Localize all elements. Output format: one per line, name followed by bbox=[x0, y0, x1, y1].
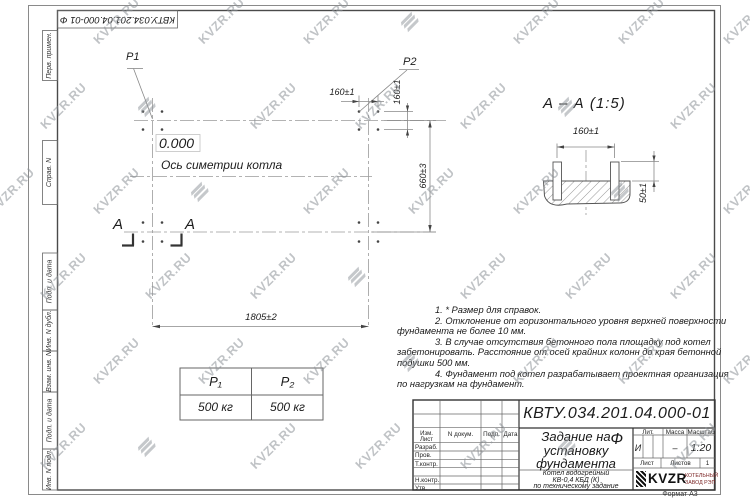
load-table-header-p1: P₁ bbox=[180, 368, 251, 395]
titleblock-designation: КВТУ.034.201.04.000-01 Ф bbox=[520, 401, 714, 427]
dim-bolt-spacing-y: 160±1 bbox=[392, 72, 402, 112]
tb-scale-label: Масштаб bbox=[687, 429, 715, 436]
load-table-value-p2: 500 кг bbox=[252, 395, 323, 420]
tb-row-nkontr: Н.контр. bbox=[415, 477, 439, 484]
tb-col-data: Дата bbox=[502, 431, 519, 438]
tb-col-izm-list: Изм. Лист bbox=[413, 431, 440, 443]
drawing-sheet: КВТУ.034.201.04.000-01 Ф Перв. примен. С… bbox=[0, 0, 750, 500]
kvzr-logo-text: KVZR bbox=[648, 471, 687, 486]
margin-label-perv-primen: Перв. примен. bbox=[42, 30, 57, 80]
load-table-header-p2: P₂ bbox=[252, 368, 323, 395]
top-rotated-stamp: КВТУ.034.201.04.000-01 Ф bbox=[57, 10, 178, 28]
titleblock-product: Котел водогрейный КВ-0,4 КБД (К) по техн… bbox=[519, 471, 633, 491]
tb-scale-value: 1:20 bbox=[687, 439, 715, 457]
titleblock-doc-title: Задание на установку фундамента bbox=[519, 430, 633, 471]
margin-label-podp-data-1: Подп. и дата bbox=[42, 253, 57, 310]
doc-title-line: фундамента bbox=[519, 457, 633, 471]
product-line: по техническому задание bbox=[519, 484, 633, 491]
tb-row-razrab: Разраб. bbox=[415, 444, 438, 451]
notes-block: 1. * Размер для справок. 2. Отклонение о… bbox=[397, 305, 715, 390]
tb-col-podp: Подп. bbox=[481, 431, 502, 438]
section-view-title: А – А (1:5) bbox=[543, 95, 626, 112]
section-letter-right: A bbox=[185, 216, 195, 233]
dim-plan-width: 1805±2 bbox=[230, 312, 292, 323]
tb-lit-value: И bbox=[633, 439, 643, 457]
margin-label-vzam-inv: Взам. инв. N bbox=[42, 351, 57, 392]
note-line: по нагрузкам на фундамент. bbox=[397, 379, 715, 390]
format-label: Формат А3 bbox=[645, 491, 715, 498]
tb-lit-label: Лит. bbox=[633, 429, 663, 436]
doc-title-line: установку bbox=[519, 444, 633, 458]
tb-mass-value: – bbox=[663, 439, 687, 457]
tb-row-prov: Пров. bbox=[415, 452, 432, 459]
load-point-p2-label: P2 bbox=[403, 56, 416, 68]
tb-sheets-label: Листов bbox=[661, 460, 700, 467]
leader-lines bbox=[127, 69, 419, 120]
level-mark-value: 0.000 bbox=[159, 135, 194, 151]
dim-section-height: 50±1 bbox=[638, 173, 648, 213]
margin-label-inv-dubl: Инв. N дубл. bbox=[42, 310, 57, 351]
note-line: забетонировать. Расстояние от осей крайн… bbox=[397, 347, 715, 358]
note-line: 2. Отклонение от горизонтального уровня … bbox=[397, 316, 715, 327]
tb-sheet-label: Лист bbox=[633, 460, 661, 467]
note-line: фундамента не более 10 мм. bbox=[397, 326, 715, 337]
company-logo: KVZR КОТЕЛЬНЫЙ ЗАВОД РЭП bbox=[635, 469, 714, 489]
plan-centerlines bbox=[124, 98, 446, 327]
dim-bolt-spacing-x: 160±1 bbox=[326, 87, 358, 97]
load-table-value-p1: 500 кг bbox=[180, 395, 251, 420]
dim-plan-height: 660±3 bbox=[418, 156, 428, 196]
dim-section-width: 160±1 bbox=[563, 126, 609, 137]
tb-row-utv: Утв. bbox=[415, 485, 427, 492]
note-line: 1. * Размер для справок. bbox=[397, 305, 715, 316]
margin-label-sprav-n: Справ. N bbox=[42, 140, 57, 204]
section-letter-left: A bbox=[113, 216, 123, 233]
note-line: подушки 500 мм. bbox=[397, 358, 715, 369]
company-name-line1: КОТЕЛЬНЫЙ bbox=[685, 473, 718, 479]
margin-label-inv-podl: Инв. N подл. bbox=[42, 449, 57, 490]
tb-mass-label: Масса bbox=[663, 429, 687, 436]
tb-sheets-value: 1 bbox=[700, 460, 715, 467]
boiler-axis-label: Ось симетрии котла bbox=[161, 158, 282, 172]
tb-row-tkontr: Т.контр. bbox=[415, 461, 438, 468]
load-point-p1-label: P1 bbox=[126, 51, 139, 63]
tb-col-n-dokum: N докум. bbox=[441, 431, 480, 438]
kvzr-logo-mark-icon bbox=[636, 471, 646, 487]
doc-title-line: Задание на bbox=[519, 430, 633, 444]
company-name-line2: ЗАВОД РЭП bbox=[685, 480, 715, 486]
margin-label-podp-data-2: Подп. и дата bbox=[42, 392, 57, 449]
note-line: 4. Фундамент под котел разрабатывает про… bbox=[397, 369, 715, 380]
note-line: 3. В случае отсутствия бетонного пола пл… bbox=[397, 337, 715, 348]
